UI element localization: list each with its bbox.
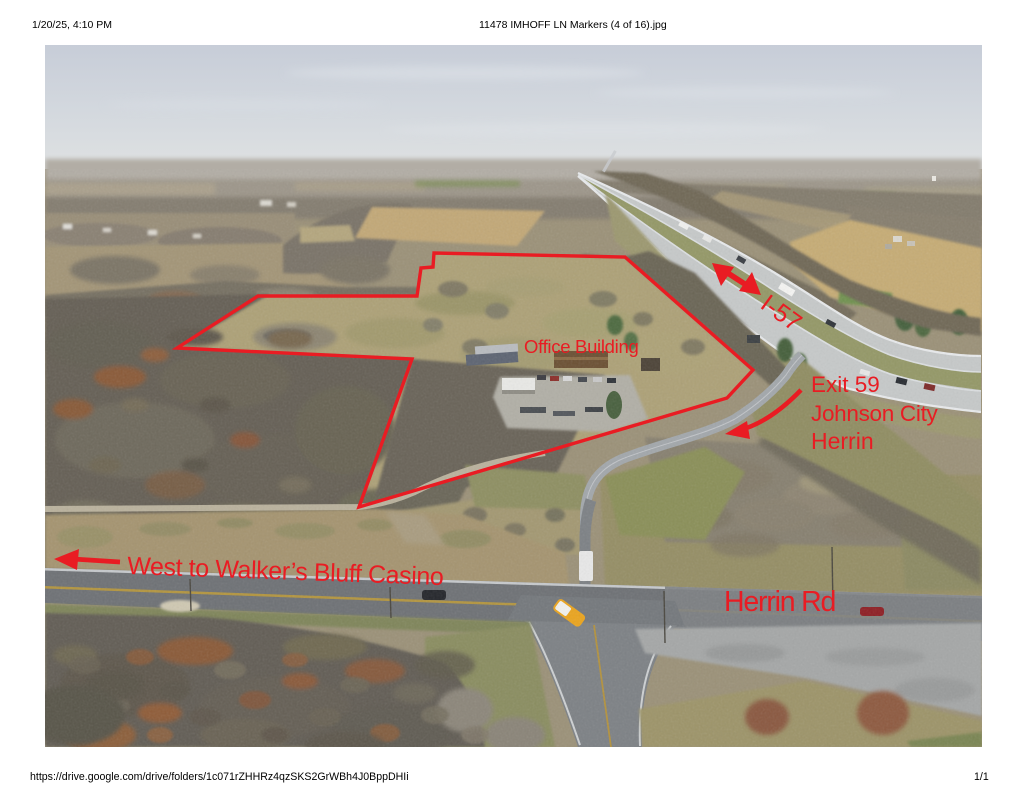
svg-text:Herrin Rd: Herrin Rd: [724, 586, 835, 618]
svg-text:Office Building: Office Building: [524, 336, 638, 357]
svg-text:Johnson City: Johnson City: [811, 401, 939, 426]
svg-text:Exit 59: Exit 59: [811, 372, 880, 397]
svg-text:Herrin: Herrin: [811, 428, 874, 454]
